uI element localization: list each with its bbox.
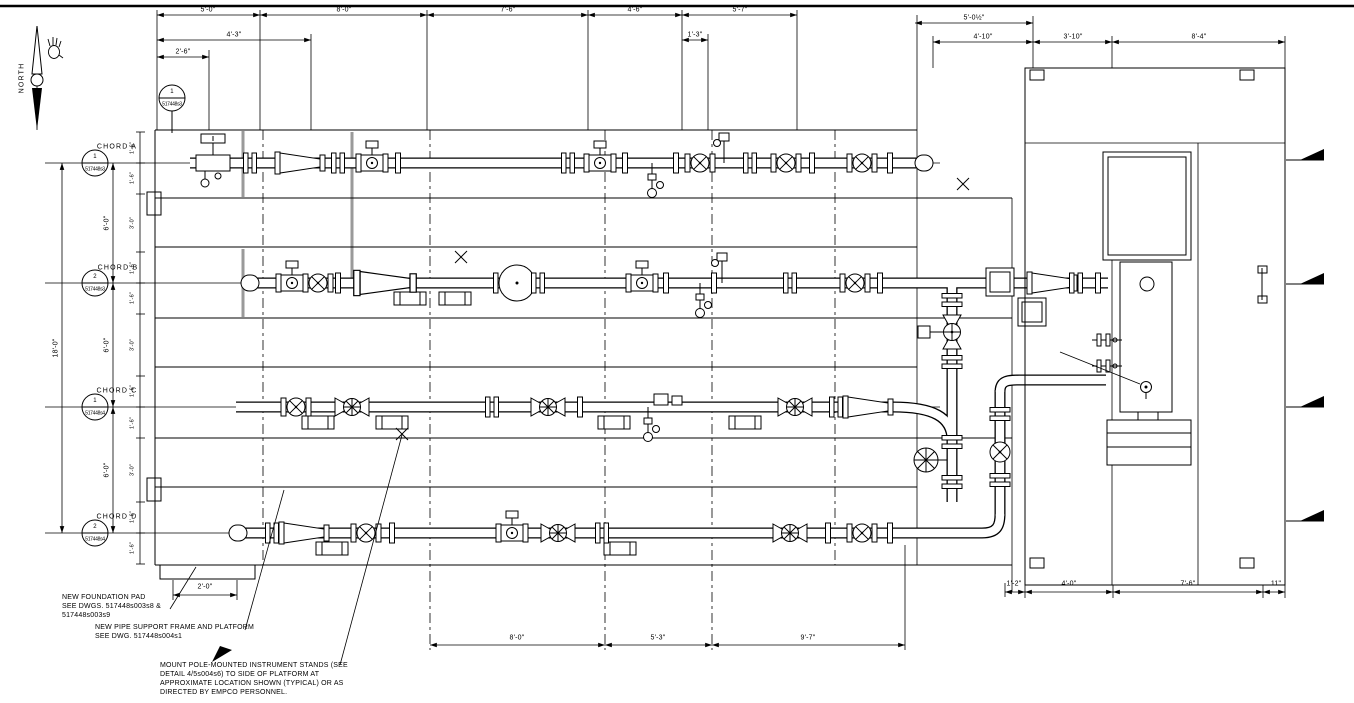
dim-left-inner: 1'-6" [130, 417, 136, 429]
dim-bottom: 9'-7" [801, 635, 816, 642]
chord-centerlines [45, 163, 940, 533]
dim-left-bay: 6'-0" [104, 463, 111, 478]
north-arrow-icon [31, 26, 43, 130]
chord-d-train [229, 511, 893, 555]
chord-c-balloon-ref: 517448s4 [85, 412, 105, 417]
meter-building [1025, 68, 1285, 585]
piping-plan-linework [0, 0, 1354, 703]
chord-d-balloon-number: 2 [93, 524, 97, 530]
chord-c-balloon-number: 1 [93, 398, 97, 404]
dim-top: 4'-10" [973, 34, 992, 41]
dim-left-inner: 1'-6" [130, 292, 136, 304]
chord-b-label: CHORD B [98, 265, 139, 272]
chord-c-train [281, 394, 893, 442]
chord-a-balloon-ref: 517448s3 [85, 168, 105, 173]
chord-a-label: CHORD A [97, 144, 137, 151]
dim-bottom-right: 11" [1271, 581, 1281, 588]
match-line-arrows [1286, 149, 1324, 521]
dim-bottom-right: 7'-6" [1181, 581, 1196, 588]
dim-bottom: 5'-3" [651, 635, 666, 642]
dim-top: 8'-0" [337, 7, 352, 14]
dim-left-overall: 18'-0" [53, 338, 60, 357]
north-label: NORTH [19, 63, 26, 94]
dim-bottom-left: 2'-0" [198, 584, 213, 591]
foundation-pad [160, 565, 255, 579]
pipe-runs-inner [190, 163, 1108, 533]
chord-b-balloon-number: 2 [93, 274, 97, 280]
note-foundation-line: 517448s003s9 [62, 612, 110, 619]
drawing-root [0, 6, 1354, 665]
callout-balloons [82, 85, 185, 546]
dim-left-inner: 3'-0" [130, 464, 136, 476]
dim-top: 7'-6" [501, 7, 516, 14]
chord-c-label: CHORD C [96, 388, 137, 395]
dim-bottom: 8'-0" [510, 635, 525, 642]
dim-top: 1'-3" [688, 32, 703, 39]
note-foundation-line: NEW FOUNDATION PAD [62, 594, 145, 601]
dim-top: 5'-0" [201, 7, 216, 14]
note-foundation-line: SEE DWGS. 517448s003s8 & [62, 603, 161, 610]
dim-top: 5'-7" [733, 7, 748, 14]
chord-d-label: CHORD D [96, 514, 137, 521]
dim-top: 2'-6" [176, 49, 191, 56]
top-balloon-ref: 517448s3 [162, 103, 182, 108]
x-mark [957, 178, 969, 190]
chord-a-balloon-number: 1 [93, 154, 97, 160]
dim-left-inner: 1'-6" [130, 542, 136, 554]
note-pipe-support-line: SEE DWG. 517448s004s1 [95, 633, 182, 640]
dim-left-bay: 6'-0" [104, 338, 111, 353]
dim-left-inner: 3'-0" [130, 339, 136, 351]
note-instrument-stands-line: DETAIL 4/5s004s6) TO SIDE OF PLATFORM AT [160, 671, 319, 678]
dim-bottom-right: 4'-0" [1062, 581, 1077, 588]
pipe-runs-outer [190, 163, 1108, 533]
hand-cursor-icon [48, 37, 63, 59]
dim-left-inner: 3'-0" [130, 217, 136, 229]
platform-outline [147, 15, 1012, 592]
dim-top: 5'-0½" [964, 15, 985, 22]
centerlines-vertical [263, 130, 835, 650]
note-instrument-stands-line: APPROXIMATE LOCATION SHOWN (TYPICAL) OR … [160, 680, 344, 687]
dim-left-bay: 6'-0" [104, 216, 111, 231]
note-instrument-stands-line: MOUNT POLE-MOUNTED INSTRUMENT STANDS (SE… [160, 662, 348, 669]
dimension-lines [62, 10, 1285, 650]
dim-bottom-right: 1'-2" [1007, 581, 1022, 588]
cad-drawing-viewport[interactable]: 5'-0" 8'-0" 7'-6" 4'-6" 5'-7" 5'-0½" 4'-… [0, 0, 1354, 703]
x-mark [455, 251, 467, 263]
chord-b-balloon-ref: 517448s3 [85, 288, 105, 293]
dim-top: 4'-6" [628, 7, 643, 14]
note-pipe-support-line: NEW PIPE SUPPORT FRAME AND PLATFORM [95, 624, 254, 631]
top-balloon-number: 1 [170, 89, 174, 95]
dim-top: 4'-3" [227, 32, 242, 39]
note-instrument-stands-line: DIRECTED BY EMPCO PERSONNEL. [160, 689, 287, 696]
dim-top: 3'-10" [1063, 34, 1082, 41]
chord-d-balloon-ref: 517448s4 [85, 538, 105, 543]
dim-left-inner: 1'-6" [130, 172, 136, 184]
dim-top: 8'-4" [1192, 34, 1207, 41]
